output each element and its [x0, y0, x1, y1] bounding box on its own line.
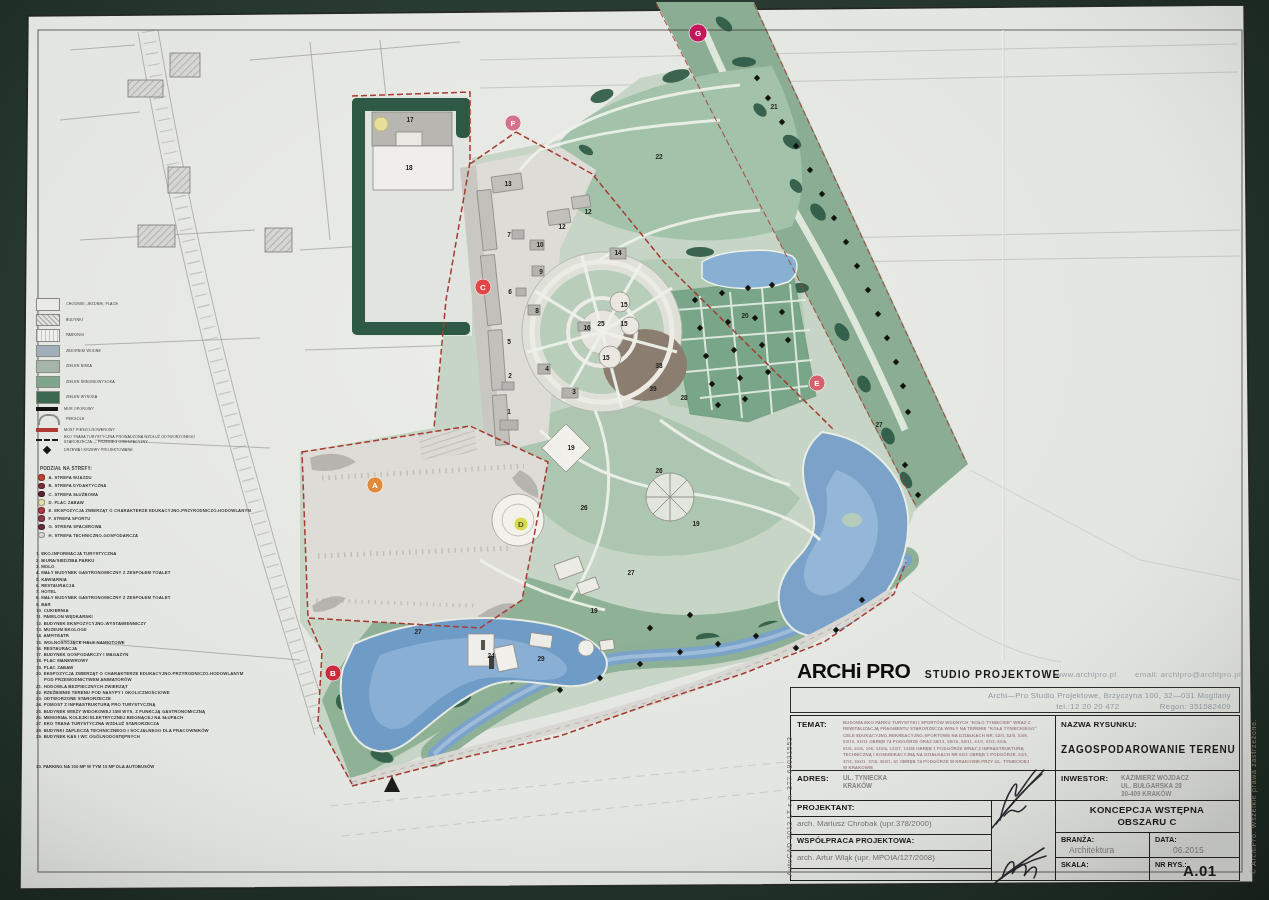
map-number: 4	[545, 365, 549, 372]
legend-row: EKO TRASA TURYSTYCZNA PROWADZONA WZDŁUŻ …	[36, 435, 286, 444]
temat-label: TEMAT:	[797, 720, 827, 729]
zone-marker-A: A	[367, 477, 383, 493]
map-number: 19	[567, 444, 575, 451]
zone-label: G. STREFA SPACEROWA	[49, 524, 102, 529]
map-number: 14	[614, 249, 622, 256]
email: email: archipro@archipro.pl	[1135, 670, 1241, 679]
legend-row: PERGOLE	[36, 414, 286, 425]
map-number: 1	[507, 408, 511, 415]
drawing-title: ZAGOSPODAROWANIE TERENU	[1061, 744, 1236, 755]
zone-marker-E: E	[809, 375, 825, 391]
wspolpraca-name: arch. Artur Wiąk (upr. MPOIA/127/2008)	[797, 853, 935, 862]
legend: CHODNIKI, JEZDNIE, PLACEBUDYNKIPARKINGIZ…	[36, 298, 286, 769]
map-number: 15	[620, 320, 628, 327]
legend-row: ZIELEŃ ŚREDNIOWYSOKA	[36, 376, 286, 389]
legend-symbol	[36, 314, 60, 327]
legend-label: PARKINGI	[66, 333, 84, 337]
map-number: 6	[508, 288, 512, 295]
map-number: 10	[536, 241, 544, 248]
map-number: 19	[692, 520, 700, 527]
svg-text:D: D	[518, 520, 524, 529]
map-number: 26	[580, 504, 588, 511]
inwestor-line3: 30-409 KRAKÓW	[1121, 790, 1189, 798]
zone-row-A: A. STREFA WJAZDU	[38, 474, 286, 481]
map-number: 5	[507, 338, 511, 345]
svg-text:B: B	[330, 669, 336, 678]
legend-row: BUDYNKI	[36, 314, 286, 327]
zone-marker-B: B	[325, 665, 341, 681]
legend-symbol	[38, 414, 60, 425]
website: www.archipro.pl	[1055, 670, 1116, 679]
map-number: 29	[537, 655, 545, 662]
legend-symbol	[36, 298, 60, 311]
branza-label: BRANŻA:	[1061, 835, 1094, 844]
map-number: 8	[535, 307, 539, 314]
koncepcja-line2: OBSZARU C	[1055, 816, 1239, 828]
zone-marker-G: G	[689, 24, 707, 42]
svg-text:G: G	[695, 29, 701, 38]
legend-row: PARKINGI	[36, 329, 286, 342]
zone-marker-C: C	[475, 279, 491, 295]
item-row: 20. EKSPOZYCJA ZWIERZĄT O CHARAKTERZE ED…	[36, 671, 286, 684]
map-number: 21	[770, 103, 778, 110]
numbered-item-list: 1. EKO-INFORMACJA TURYSTYCZNA2. BIURA/SI…	[36, 551, 286, 740]
legend-label: BUDYNKI	[66, 318, 83, 322]
nazwa-label: NAZWA RYSUNKU:	[1061, 720, 1137, 729]
legend-swatch-list: CHODNIKI, JEZDNIE, PLACEBUDYNKIPARKINGIZ…	[36, 298, 286, 453]
zone-row-H: H. STREFA TECHNICZNO-GOSPODARCZA	[38, 532, 286, 539]
map-number: 3	[572, 388, 576, 395]
map-number: 15	[620, 301, 628, 308]
area-20	[668, 278, 816, 422]
signatures	[986, 764, 1056, 884]
adres-line2: KRAKÓW	[843, 782, 887, 790]
autocad-serial-note: AutoCAD 2013 LT s.n. 377-68021553	[786, 736, 793, 876]
map-number: 39	[649, 385, 657, 392]
inwestor-label: INWESTOR:	[1061, 774, 1108, 783]
legend-label: MOST PIESZO-ROWEROWY	[64, 428, 115, 432]
zone-marker-D: D	[514, 517, 528, 531]
map-number: 27	[414, 628, 422, 635]
svg-text:E: E	[814, 379, 820, 388]
legend-symbol	[36, 439, 58, 441]
nr-label: NR RYS.:	[1155, 860, 1187, 869]
zone-label: D. PLAC ZABAW	[49, 500, 84, 505]
zones-title: PODZIAŁ NA STREFY:	[40, 466, 286, 471]
map-number: 27	[875, 421, 883, 428]
zone-dot	[38, 507, 45, 514]
address-line1: Archi—Pro Studio Projektowe, Brzyczyna 1…	[791, 690, 1231, 701]
zone-label: E. EKSPOZYCJA ZWIERZĄT O CHARAKTERZE EDU…	[49, 508, 251, 513]
photo-of-site-plan: 1718131212147109681625151515542313839222…	[0, 0, 1269, 900]
legend-row: DRZEWA I KRZEWY PROJEKTOWANE	[36, 447, 286, 453]
map-number: 18	[405, 164, 413, 171]
legend-label: PERGOLE	[66, 417, 84, 421]
svg-text:F: F	[511, 119, 516, 128]
map-number: 20	[741, 312, 749, 319]
koncepcja-line1: KONCEPCJA WSTĘPNA	[1055, 804, 1239, 816]
wspolpraca-label: WSPÓŁPRACA PROJEKTOWA:	[797, 836, 914, 845]
zone-row-G: G. STREFA SPACEROWA	[38, 524, 286, 531]
item-row: 29. BUDYNEK KAS I WC OGÓLNODOSTĘPNYCH	[36, 734, 286, 740]
skala-label: SKALA:	[1061, 860, 1089, 869]
legend-symbol	[36, 407, 58, 411]
zone-label: A. STREFA WJAZDU	[49, 475, 92, 480]
legend-row: ZBIORNIKI WODNE	[36, 345, 286, 358]
map-number: 16	[583, 324, 591, 331]
adres-label: ADRES:	[797, 774, 829, 783]
zone-row-D: D. PLAC ZABAW	[38, 499, 286, 506]
map-number: 27	[627, 569, 635, 576]
legend-row: MOST PIESZO-ROWEROWY	[36, 428, 286, 432]
zone-dot	[38, 532, 45, 539]
map-number: 9	[539, 268, 543, 275]
map-number: 38	[655, 362, 663, 369]
map-number: 7	[507, 231, 511, 238]
legend-symbol	[36, 428, 58, 432]
legend-label: CHODNIKI, JEZDNIE, PLACE	[66, 302, 118, 306]
legend-symbol	[36, 360, 60, 373]
legend-label: MUR OPOROWY	[64, 407, 94, 411]
legend-label: EKO TRASA TURYSTYCZNA PROWADZONA WZDŁUŻ …	[64, 435, 195, 444]
zone-dot	[38, 474, 45, 481]
zone-dot	[38, 483, 45, 490]
legend-label: ZIELEŃ WYSOKA	[66, 395, 97, 399]
inwestor-line1: KAZIMIERZ WOJDACZ	[1121, 774, 1189, 782]
legend-label: ZIELEŃ NISKA	[66, 364, 92, 368]
zone-dot	[38, 524, 45, 531]
zone-label: H. STREFA TECHNICZNO-GOSPODARCZA	[49, 533, 139, 538]
map-number: 24	[487, 652, 495, 659]
data-label: DATA:	[1155, 835, 1177, 844]
map-number: 12	[558, 223, 566, 230]
svg-text:C: C	[480, 283, 486, 292]
map-number: 2	[508, 372, 512, 379]
zone-marker-F: F	[505, 115, 521, 131]
archipro-logo: ARCHi PRO	[797, 659, 910, 682]
zone-label: F. STREFA SPORTU	[49, 516, 91, 521]
adres-line1: UL. TYNIECKA	[843, 774, 887, 782]
legend-row: MUR OPOROWY	[36, 407, 286, 411]
map-number: 12	[584, 208, 592, 215]
zone-row-E: E. EKSPOZYCJA ZWIERZĄT O CHARAKTERZE EDU…	[38, 507, 286, 514]
branza-value: Architektura	[1069, 845, 1114, 855]
map-number: 26	[655, 467, 663, 474]
map-number: 15	[602, 354, 610, 361]
map-number: 19	[590, 607, 598, 614]
legend-label: ZBIORNIKI WODNE	[66, 349, 101, 353]
projektant-label: PROJEKTANT:	[797, 803, 855, 812]
map-number: 17	[406, 116, 414, 123]
legend-symbol	[36, 376, 60, 389]
address-bar: Archi—Pro Studio Projektowe, Brzyczyna 1…	[790, 687, 1240, 713]
copyright-note: © ArchiPro. Wszelkie prawa zastrzeżone.	[1250, 719, 1257, 874]
legend-label: ZIELEŃ ŚREDNIOWYSOKA	[66, 380, 115, 384]
legend-row: CHODNIKI, JEZDNIE, PLACE	[36, 298, 286, 311]
zone-row-B: B. STREFA DYDAKTYCZNA	[38, 483, 286, 490]
zone-dot	[38, 491, 45, 498]
zone-row-C: C. STREFA SŁUŻBOWA	[38, 491, 286, 498]
zone-row-F: F. STREFA SPORTU	[38, 515, 286, 522]
map-number: 25	[597, 320, 605, 327]
legend-symbol	[36, 391, 60, 404]
zone-label: B. STREFA DYDAKTYCZNA	[49, 483, 107, 488]
legend-row: ZIELEŃ NISKA	[36, 360, 286, 373]
map-number: 28	[680, 394, 688, 401]
legend-symbol	[43, 446, 51, 454]
legend-symbol	[36, 329, 60, 342]
legend-row: ZIELEŃ WYSOKA	[36, 391, 286, 404]
zone-list: A. STREFA WJAZDUB. STREFA DYDAKTYCZNAC. …	[36, 474, 286, 538]
phone: tel.:12 20 20 472	[1056, 702, 1119, 711]
item-footer: 30. PARKING NA 150 MP W TYM 15 MP DLA AU…	[36, 764, 286, 769]
zone-dot	[38, 499, 45, 506]
projektant-name: arch. Mariusz Chrobak (upr.378/2000)	[797, 819, 932, 828]
svg-text:A: A	[372, 481, 378, 490]
map-number: 22	[655, 153, 663, 160]
legend-symbol	[36, 345, 60, 358]
drawing-number: A.01	[1183, 862, 1217, 879]
zone-dot	[38, 515, 45, 522]
regon: Regon: 351582409	[1160, 702, 1231, 711]
data-value: 06.2015	[1173, 845, 1204, 855]
zone-label: C. STREFA SŁUŻBOWA	[49, 492, 99, 497]
legend-label: DRZEWA I KRZEWY PROJEKTOWANE	[64, 448, 133, 452]
map-number: 13	[504, 180, 512, 187]
